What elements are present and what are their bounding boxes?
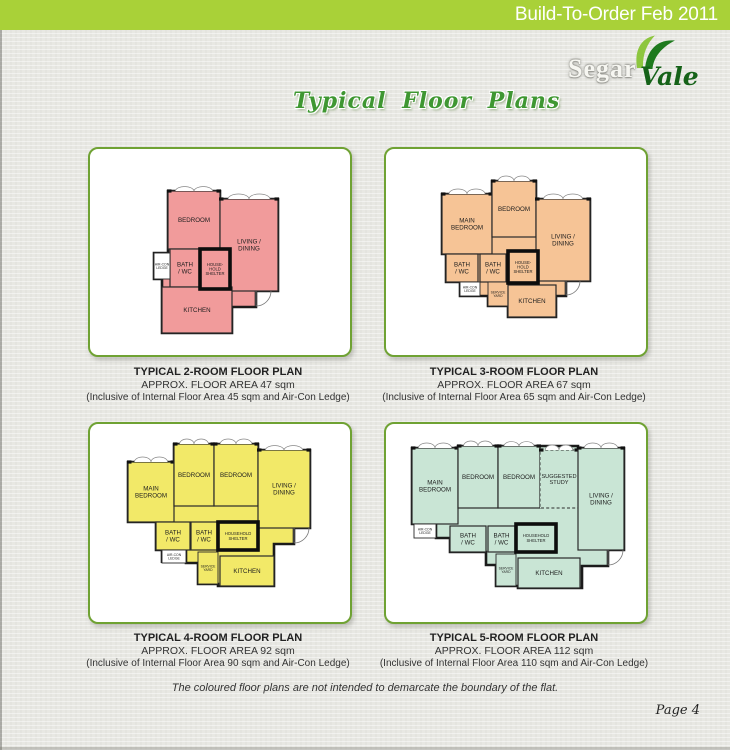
room-label: BEDROOM [178, 217, 210, 224]
wall-block [307, 448, 312, 451]
room-label: MAIN [427, 480, 442, 487]
wall-block [255, 442, 260, 445]
wall-block [275, 197, 280, 200]
header-banner: Build-To-Order Feb 2011 [0, 0, 730, 30]
room-label: YARD [493, 294, 503, 298]
room-label: BEDROOM [451, 225, 483, 232]
window-scallops [498, 176, 530, 181]
footer-note: The coloured floor plans are not intende… [0, 682, 730, 694]
window-scallops [175, 187, 212, 191]
room-label: DINING [590, 500, 612, 507]
caption-area: APPROX. FLOOR AREA 92 sqm [68, 645, 368, 657]
room-label: LEDGE [168, 557, 180, 561]
caption-title: TYPICAL 2-ROOM FLOOR PLAN [68, 366, 368, 378]
window-scallops [584, 443, 617, 448]
floor-plan-panel-3room: MAINBEDROOMBEDROOMLIVING /DININGBATH/ WC… [384, 147, 648, 357]
room-label: BEDROOM [220, 472, 252, 479]
caption-title: TYPICAL 5-ROOM FLOOR PLAN [364, 632, 664, 644]
window-scallops [220, 439, 252, 444]
room-label: SUGGESTED [541, 474, 576, 480]
room-label: SHELTER [228, 536, 247, 541]
room-label: BEDROOM [135, 493, 167, 500]
room-label: YARD [203, 568, 213, 572]
window-scallops [418, 443, 451, 448]
wall-block [127, 460, 132, 463]
wall-block [535, 197, 540, 200]
caption-area: APPROX. FLOOR AREA 47 sqm [68, 379, 368, 391]
caption-inclusive: (Inclusive of Internal Floor Area 45 sqm… [68, 392, 368, 403]
room-label: STUDY [550, 480, 569, 486]
floor-plan-3room: MAINBEDROOMBEDROOMLIVING /DININGBATH/ WC… [386, 149, 646, 355]
wall-block [533, 179, 538, 182]
wall-block [539, 448, 544, 451]
room-label: / WC [486, 269, 500, 276]
caption-inclusive: (Inclusive of Internal Floor Area 90 sqm… [68, 658, 368, 669]
caption-area: APPROX. FLOOR AREA 67 sqm [364, 379, 664, 391]
room-label: LIVING / [589, 493, 613, 500]
room-label: BATH [493, 533, 509, 540]
window-scallops [449, 189, 485, 194]
room-label: KITCHEN [535, 570, 562, 577]
room-label: BEDROOM [503, 474, 535, 481]
room-label: KITCHEN [233, 568, 260, 575]
floor-plan-panel-4room: MAINBEDROOMBEDROOMBEDROOMLIVING /DININGB… [88, 422, 352, 624]
room-label: MAIN [459, 218, 474, 225]
room-label: LIVING / [272, 483, 296, 490]
window-scallops [265, 446, 302, 450]
room-label: LEDGE [419, 531, 431, 535]
caption-inclusive: (Inclusive of Internal Floor Area 110 sq… [364, 658, 664, 669]
window-scallops [180, 439, 209, 444]
entrance-door-arc [608, 550, 623, 565]
room-label: DINING [552, 241, 574, 248]
room-label: BEDROOM [178, 472, 210, 479]
logo-segar-text: Segar [568, 54, 637, 84]
wall-block [219, 197, 224, 200]
window-scallops [134, 457, 167, 462]
page-number: Page 4 [656, 703, 700, 718]
room-label: / WC [166, 537, 180, 544]
wall-block [587, 197, 592, 200]
room-label: LIVING / [551, 234, 575, 241]
wall-block [537, 444, 542, 447]
wall-block [173, 442, 178, 445]
room-label: DINING [273, 490, 295, 497]
caption-5room: TYPICAL 5-ROOM FLOOR PLAN APPROX. FLOOR … [364, 632, 664, 669]
entrance-door-arc [256, 291, 271, 306]
room-label: BATH [196, 530, 212, 537]
room-label: LEDGE [464, 289, 476, 293]
caption-title: TYPICAL 4-ROOM FLOOR PLAN [68, 632, 368, 644]
room-label: KITCHEN [518, 298, 545, 305]
room-label: DINING [238, 246, 260, 253]
floor-plan-panel-5room: MAINBEDROOMBEDROOMBEDROOMSUGGESTEDSTUDYL… [384, 422, 648, 624]
wall-block [213, 442, 218, 445]
room-label: BATH [177, 262, 193, 269]
room-label: BEDROOM [462, 474, 494, 481]
wall-block [441, 192, 446, 195]
room-label: MAIN [143, 486, 158, 493]
window-scallops [228, 194, 270, 199]
room-label: LEDGE [156, 266, 168, 270]
window-scallops [544, 194, 583, 199]
room-label: / WC [178, 269, 192, 276]
wall-block [577, 446, 582, 449]
caption-4room: TYPICAL 4-ROOM FLOOR PLAN APPROX. FLOOR … [68, 632, 368, 669]
room-label: SHELTER [513, 269, 532, 274]
entrance-door-arc [294, 528, 309, 543]
wall-block [457, 444, 462, 447]
caption-inclusive: (Inclusive of Internal Floor Area 65 sqm… [364, 392, 664, 403]
room-label: BATH [454, 262, 470, 269]
caption-title: TYPICAL 3-ROOM FLOOR PLAN [364, 366, 664, 378]
wall-block [621, 446, 626, 449]
room-label: BEDROOM [419, 487, 451, 494]
room-label: YARD [501, 570, 511, 574]
page-title: Typical Floor Plans [293, 88, 560, 114]
room-label: SHELTER [205, 271, 224, 276]
floor-plan-panel-2room: BEDROOMLIVING /DININGBATH/ WCAIR-CONLEDG… [88, 147, 352, 357]
floor-plan-4room: MAINBEDROOMBEDROOMBEDROOMLIVING /DININGB… [90, 424, 350, 622]
wall-block [497, 444, 502, 447]
caption-2room: TYPICAL 2-ROOM FLOOR PLAN APPROX. FLOOR … [68, 366, 368, 403]
room-label: / WC [197, 537, 211, 544]
wall-block [167, 189, 172, 192]
window-scallops [504, 442, 534, 446]
segar-vale-logo: Segar Vale [568, 38, 708, 96]
logo-vale-text: Vale [640, 62, 699, 91]
room-label: BATH [165, 530, 181, 537]
caption-3room: TYPICAL 3-ROOM FLOOR PLAN APPROX. FLOOR … [364, 366, 664, 403]
room-label: / WC [461, 540, 475, 547]
window-scallops [464, 441, 493, 446]
room-label: BEDROOM [498, 206, 530, 213]
room-label: BATH [485, 262, 501, 269]
entrance-door-arc [566, 281, 580, 295]
room-label: / WC [455, 269, 469, 276]
room-label: LIVING / [237, 239, 261, 246]
room-label: KITCHEN [183, 307, 210, 314]
wall-block [217, 189, 222, 192]
page-left-edge [0, 0, 2, 750]
room-label: SHELTER [526, 538, 545, 543]
room-label: BATH [460, 533, 476, 540]
wall-block [491, 179, 496, 182]
wall-block [411, 446, 416, 449]
wall-block [257, 448, 262, 451]
floor-plan-2room: BEDROOMLIVING /DININGBATH/ WCAIR-CONLEDG… [90, 149, 350, 355]
floor-plan-5room: MAINBEDROOMBEDROOMBEDROOMSUGGESTEDSTUDYL… [386, 424, 646, 622]
room-label: / WC [495, 540, 509, 547]
banner-title: Build-To-Order Feb 2011 [515, 4, 730, 26]
caption-area: APPROX. FLOOR AREA 112 sqm [364, 645, 664, 657]
